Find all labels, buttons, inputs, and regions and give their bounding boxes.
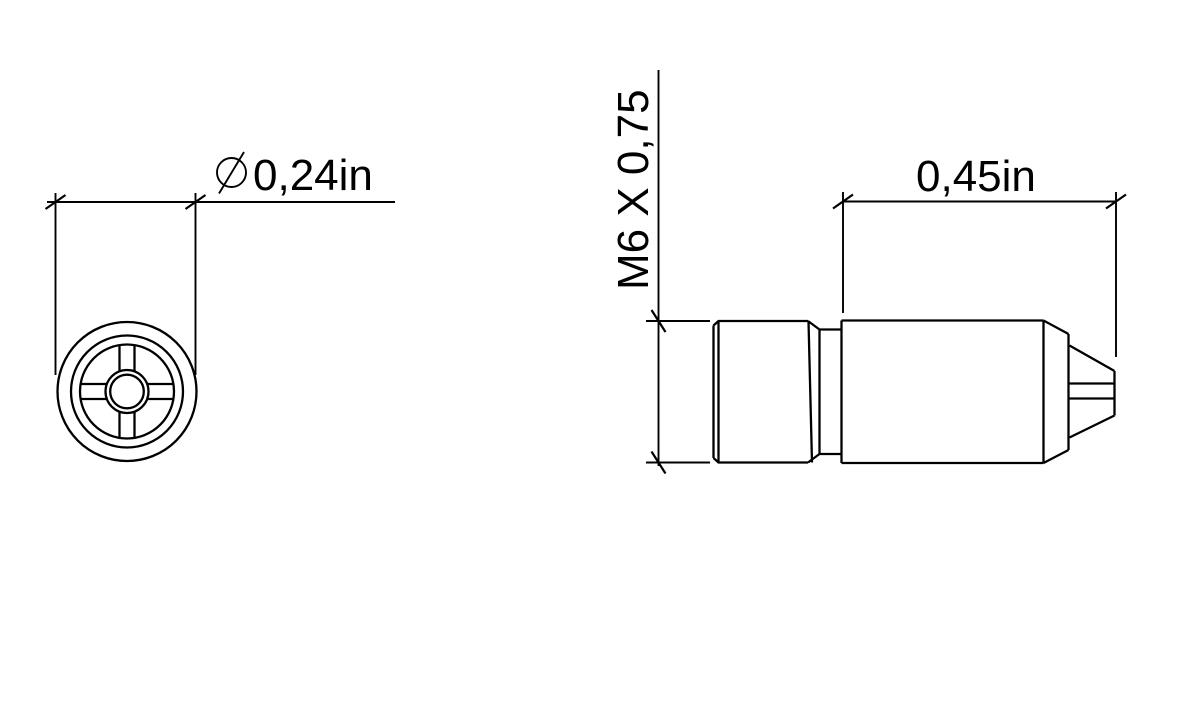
front-view: [58, 322, 197, 461]
front-hub-outer-circle: [106, 370, 149, 413]
technical-drawing: 0,24in M6 X 0,75 0,45in: [0, 0, 1181, 708]
length-dimension: 0,45in: [833, 152, 1126, 357]
front-cross-spokes: [81, 345, 174, 438]
front-chamfer-circle: [71, 336, 183, 448]
drawing-canvas: 0,24in M6 X 0,75 0,45in: [0, 0, 1181, 708]
front-spoke-ring-circle: [80, 345, 174, 439]
diameter-dimension: 0,24in: [46, 151, 396, 375]
thread-section-outline: [714, 321, 842, 463]
front-hub-bore-circle: [110, 375, 144, 409]
tip-cone-outline: [1070, 346, 1115, 438]
diameter-dimension-label: 0,24in: [253, 151, 373, 200]
length-dimension-label: 0,45in: [916, 152, 1036, 201]
diameter-symbol-icon: [217, 152, 246, 194]
thread-dimension: M6 X 0,75: [609, 70, 710, 474]
thread-dimension-label: M6 X 0,75: [609, 89, 658, 290]
side-view: [714, 321, 1115, 464]
body-section-outline: [842, 321, 1069, 464]
front-outer-circle: [58, 322, 197, 461]
